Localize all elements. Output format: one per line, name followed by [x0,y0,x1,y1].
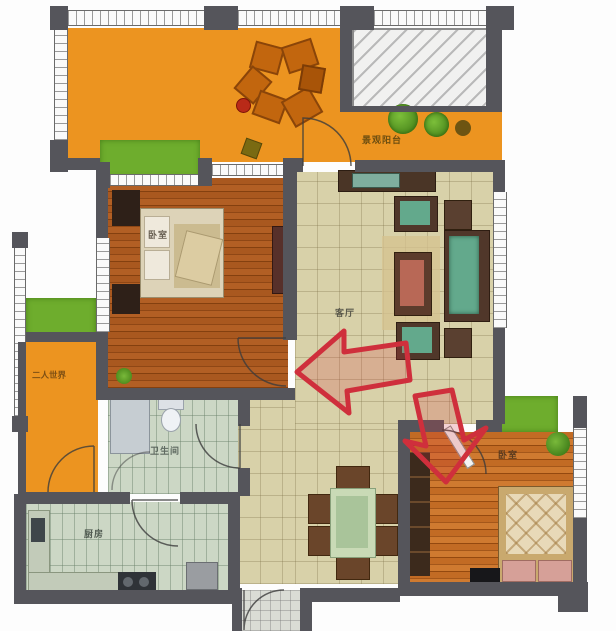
wall-segment [66,158,100,170]
coffee-table-top [400,260,424,306]
room-label-left-balcony: 二人世界 [32,369,66,381]
wall-segment [232,588,242,631]
left-balcony-floor [26,342,98,494]
wall-segment [300,588,400,602]
wall-segment [398,432,410,584]
duvet-pattern [506,494,566,554]
roof-hatch-area [352,28,490,112]
dining-chair [374,494,398,524]
window [212,164,283,176]
window [374,10,486,26]
wall-segment [342,106,502,112]
wall-segment [283,158,297,340]
dining-chair [336,466,370,490]
wall-segment [573,396,587,428]
wall-segment [340,6,374,30]
wall-segment [198,158,212,186]
room-label-bathroom: 卫生间 [150,444,180,457]
dining-tablecloth [336,496,368,548]
wall-segment [228,502,240,592]
stove-burner-icon [123,577,133,587]
wall-segment [355,160,493,172]
wardrobe [410,452,430,576]
wall-segment [493,160,505,192]
cabinet [186,562,218,590]
wall-segment [486,28,502,112]
wall-segment [96,186,108,238]
nightstand [112,190,140,226]
wall-segment [14,494,26,594]
window [573,428,587,518]
stove-burner-icon [139,577,149,587]
sofa-cushion [449,236,479,314]
wall-segment [26,332,98,342]
pillow [538,560,572,582]
room-label-living-room: 客厅 [335,306,355,319]
wall-segment [238,398,250,426]
window [96,238,110,332]
wall-segment [96,162,110,188]
toilet-bowl [161,408,181,432]
wall-segment [558,585,588,612]
dining-chair [308,494,332,524]
balcony-table [298,64,326,94]
entry-floor [240,590,302,631]
window [110,174,200,186]
wall-segment [398,420,444,432]
window [68,10,204,26]
wall-segment [18,342,26,494]
floor-plan: 景观阳台 卧室 客厅 二人世界 卫生间 厨房 卧室 [0,0,616,631]
wall-segment [204,6,238,30]
armchair-cushion [400,201,430,225]
sink-icon [31,518,45,542]
wall-segment [476,420,502,432]
wall-segment [340,28,352,112]
window [493,192,507,328]
wall-segment [26,492,130,504]
room-label-right-bedroom: 卧室 [498,448,518,461]
pillow [502,560,536,582]
balcony-red-stool [236,98,251,113]
room-label-kitchen: 厨房 [84,527,104,540]
wall-segment [14,590,240,604]
side-table [444,200,472,230]
wall-segment [486,6,514,30]
window [238,10,340,26]
plant-icon [116,368,132,384]
plant-icon [424,112,449,137]
room-label-top-balcony: 景观阳台 [362,133,402,146]
wall-segment [50,6,68,30]
dining-chair [308,526,332,556]
window [54,30,68,140]
shower [110,398,150,454]
tv-icon [352,173,400,188]
plant-icon [546,432,570,456]
wall-segment [96,388,295,400]
wall-segment [493,328,505,424]
pillow [144,250,170,280]
grass-strip-top-left [100,140,200,178]
dining-chair [336,556,370,580]
armchair-cushion [402,327,432,353]
wall-segment [12,232,28,248]
dining-chair [374,526,398,556]
room-label-left-bedroom: 卧室 [148,228,168,241]
nightstand [112,284,140,314]
plant-icon [455,120,471,136]
side-table [444,328,472,358]
